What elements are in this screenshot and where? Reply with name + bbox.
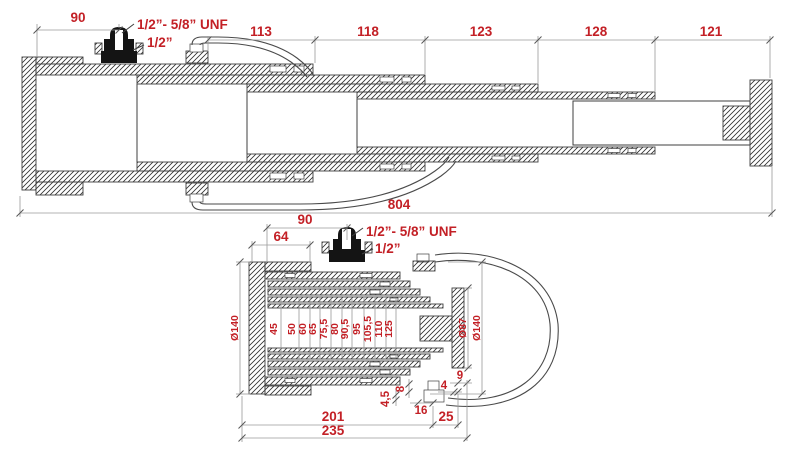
port-thread-label-section: 1/2”- 5/8” UNF bbox=[366, 224, 457, 239]
section-top-plate bbox=[265, 262, 311, 271]
port-side-nut-left bbox=[95, 43, 102, 54]
plunger-end-plate bbox=[750, 80, 772, 166]
port-size-label-section: 1/2” bbox=[375, 241, 401, 256]
section-bottom-plate bbox=[265, 386, 311, 395]
section-hose-fitting-top bbox=[413, 261, 435, 271]
oil-port-fitting bbox=[95, 27, 143, 63]
right-outer-diameter-label: Ø140 bbox=[471, 315, 483, 341]
technical-drawing-canvas: 90 113 118 123 128 121 1/2”- 5/8” UNF 1/… bbox=[0, 0, 800, 450]
dim-4-5: 4,5 bbox=[380, 390, 392, 407]
port-thread-label-top: 1/2”- 5/8” UNF bbox=[137, 17, 228, 32]
hose-fitting-top bbox=[186, 51, 208, 63]
dim-16: 16 bbox=[415, 405, 428, 417]
dim-8: 8 bbox=[395, 385, 407, 392]
dim-stage-5: 121 bbox=[700, 24, 723, 39]
dim-stage-1: 113 bbox=[250, 24, 272, 39]
section-view-drawing: 90 64 1/2”- 5/8” UNF 1/2” Ø140 bbox=[229, 212, 558, 442]
plunger-end-block bbox=[723, 106, 750, 140]
dim-stage-2: 118 bbox=[357, 24, 379, 39]
top-view-drawing: 90 113 118 123 128 121 1/2”- 5/8” UNF 1/… bbox=[17, 10, 776, 217]
outer-diameter-label: Ø140 bbox=[229, 315, 241, 341]
section-left-cap bbox=[249, 262, 265, 394]
dim-total-804: 804 bbox=[388, 197, 411, 212]
dim-4: 4 bbox=[441, 380, 448, 392]
dim-235: 235 bbox=[322, 423, 345, 438]
dim-201: 201 bbox=[322, 409, 345, 424]
dim-25: 25 bbox=[438, 409, 454, 424]
dim-90-section: 90 bbox=[297, 212, 312, 227]
section-plunger-block bbox=[420, 316, 452, 341]
bore-dia-125: 125 bbox=[383, 320, 395, 338]
dim-9: 9 bbox=[457, 370, 463, 382]
bore-dia-45: 45 bbox=[268, 323, 280, 335]
hose-fitting-bottom bbox=[186, 183, 208, 195]
drawing-svg: 90 113 118 123 128 121 1/2”- 5/8” UNF 1/… bbox=[0, 0, 800, 450]
dim-stage-3: 123 bbox=[470, 24, 493, 39]
barrel-left-cap bbox=[22, 57, 36, 190]
dim-64-section: 64 bbox=[273, 229, 289, 244]
rod-diameter-label: Ø87 bbox=[457, 318, 469, 338]
dim-90-top: 90 bbox=[70, 10, 85, 25]
port-size-label-top: 1/2” bbox=[147, 35, 173, 50]
dim-stage-4: 128 bbox=[585, 24, 608, 39]
barrel-top-flange bbox=[36, 57, 83, 64]
barrel-bottom-flange bbox=[36, 182, 83, 195]
bore-dia-90-5: 90,5 bbox=[339, 319, 351, 340]
